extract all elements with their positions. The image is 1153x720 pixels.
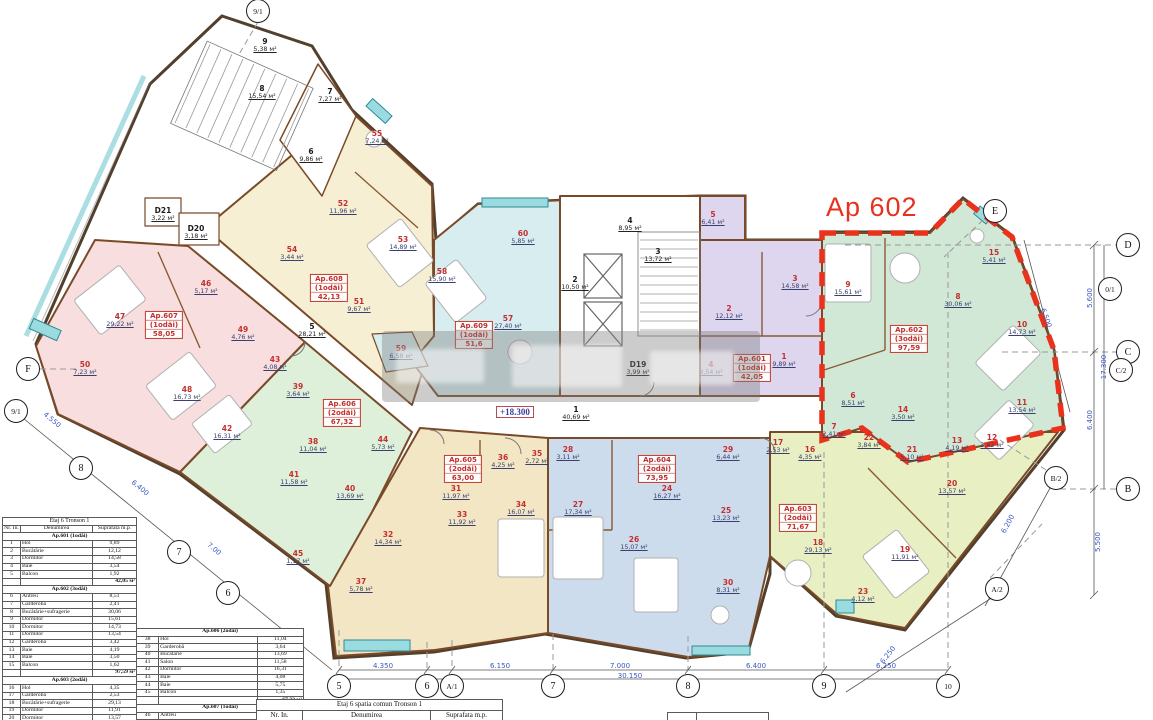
room-number: 21 — [900, 445, 923, 454]
axis-marker-C-2: C/2 — [1109, 358, 1133, 382]
room-number: 25 — [712, 506, 739, 515]
table-cell: Ap.602 (3odăi) — [3, 586, 137, 594]
room-number: 30 — [716, 578, 739, 587]
room-number: 16 — [798, 445, 821, 454]
room-number: 6 — [299, 147, 322, 156]
room-label-ap606-42: 4216,31 м² — [213, 424, 240, 440]
room-label-ap602-10: 1014,73 м² — [1008, 320, 1035, 336]
room-number: 8 — [248, 84, 275, 93]
room-number: 43 — [263, 355, 286, 364]
room-area: 15,90 м² — [428, 276, 455, 283]
axis-marker-9: 9 — [812, 674, 836, 698]
room-label-ap609-57: 5727,40 м² — [494, 314, 521, 330]
room-area: 4,19 м² — [945, 445, 968, 452]
room-number: 29 — [716, 445, 739, 454]
room-number: D20 — [184, 224, 207, 233]
apartment-name: Ap.603 — [780, 505, 816, 513]
room-label-ap606-40: 4013,69 м² — [336, 484, 363, 500]
table-cell: Ap.606 (2odăi) — [137, 629, 304, 637]
apartment-label-ap605: Ap.605(2odăi)63,00 — [444, 455, 482, 483]
room-area: 40,69 м² — [562, 414, 589, 421]
room-area: 17,34 м² — [564, 509, 591, 516]
apartment-type: (2odăi) — [445, 464, 481, 473]
dimension-label: 6.150 — [490, 662, 510, 670]
table-cell: Suprafata m.p. — [431, 710, 503, 720]
axis-marker-7: 7 — [167, 540, 191, 564]
room-label-ap606-45: 451,17 м² — [286, 549, 309, 565]
room-area: 4,25 м² — [491, 462, 514, 469]
room-label-ap604-28: 283,11 м² — [556, 445, 579, 461]
room-label-ap601-1: 19,89 м² — [772, 352, 795, 368]
schedule-table1: Etaj 6 Tronson 1Nr. In.DenumireaSuprafat… — [2, 517, 137, 720]
room-label-ap601-5: 56,41 м² — [701, 210, 724, 226]
table-cell: 40 — [137, 651, 159, 659]
axis-label: 9/1 — [11, 407, 21, 416]
room-area: 3,11 м² — [556, 454, 579, 461]
dimension-label: 7.000 — [610, 662, 630, 670]
room-number: 9 — [834, 280, 861, 289]
room-number: D21 — [151, 206, 174, 215]
room-area: 15,61 м² — [834, 289, 861, 296]
axis-label: 6 — [226, 588, 231, 599]
table-cell: 1,92 — [93, 571, 137, 579]
room-label-ap608-52: 5211,96 м² — [329, 199, 356, 215]
room-number: 1 — [772, 352, 795, 361]
room-label-ap608-55: 557,24 м² — [365, 129, 388, 145]
table-cell: Garderobă — [21, 692, 93, 700]
table-cell: Etaj 6 Tronson 1 — [3, 518, 137, 526]
table-cell: Dormitor — [159, 666, 258, 674]
table-cell: 43 — [137, 674, 159, 682]
room-area: 29,13 м² — [804, 547, 831, 554]
axis-label: 7 — [551, 681, 556, 692]
axis-label: B — [1125, 484, 1132, 495]
room-number: 22 — [857, 433, 880, 442]
room-label-ap601-3: 314,58 м² — [781, 274, 808, 290]
room-number: 15 — [982, 248, 1005, 257]
table-cell: 3,64 — [257, 644, 303, 652]
table-cell: Dormitor — [21, 631, 93, 639]
room-area: 15,07 м² — [620, 544, 647, 551]
room-label-ap603-22: 223,84 м² — [857, 433, 880, 449]
room-label-common-d20: D203,18 м² — [184, 224, 207, 240]
room-label-common-3: 313,72 м² — [644, 247, 671, 263]
table-cell: 20 — [3, 715, 21, 720]
room-number: 3 — [644, 247, 671, 256]
table-cell: 3,42 — [93, 639, 137, 647]
apartment-label-ap608: Ap.608(1odăi)42,13 — [310, 274, 348, 302]
room-label-ap604-25: 2513,23 м² — [712, 506, 739, 522]
room-label-ap607-49: 494,76 м² — [231, 325, 254, 341]
axis-marker-B: B — [1116, 477, 1140, 501]
room-label-ap604-27: 2717,34 м² — [564, 500, 591, 516]
room-area: 10,50 м² — [561, 284, 588, 291]
room-number: 2 — [715, 304, 742, 313]
room-label-ap605-31: 3111,97 м² — [442, 484, 469, 500]
level-mark: +18.300 — [496, 406, 534, 418]
table-cell — [3, 669, 21, 677]
apartment-type: (2odăi) — [780, 513, 816, 522]
table-cell: Salon — [159, 659, 258, 667]
room-number: 5 — [701, 210, 724, 219]
axis-marker-F: F — [16, 357, 40, 381]
room-number: 51 — [347, 297, 370, 306]
axis-label: 6 — [425, 681, 430, 692]
room-area: 3,44 м² — [280, 254, 303, 261]
room-area: 7,24 м² — [365, 138, 388, 145]
room-label-ap606-39: 393,64 м² — [286, 382, 309, 398]
room-label-ap604-26: 2615,07 м² — [620, 535, 647, 551]
dimension-label: 30.150 — [618, 672, 643, 680]
table-cell — [3, 578, 21, 586]
table-cell: 3 — [3, 555, 21, 563]
table-cell: 12,12 — [93, 548, 137, 556]
room-area: 13,54 м² — [1008, 407, 1035, 414]
table-cell: Dormitor — [21, 707, 93, 715]
room-label-ap605-32: 3214,34 м² — [374, 530, 401, 546]
axis-marker-B-2: B/2 — [1044, 466, 1068, 490]
table-cell: Denumirea — [21, 525, 93, 533]
table-cell: Baie — [159, 674, 258, 682]
axis-marker-8: 8 — [676, 674, 700, 698]
room-label-ap605-37: 375,78 м² — [349, 577, 372, 593]
room-area: 11,91 м² — [891, 554, 918, 561]
room-number: 8 — [944, 292, 971, 301]
table-cell: 4 — [3, 563, 21, 571]
room-label-ap607-50: 507,23 м² — [73, 360, 96, 376]
axis-marker-E: E — [983, 199, 1007, 223]
room-label-ap602-13: 134,19 м² — [945, 436, 968, 452]
room-area: 14,58 м² — [781, 283, 808, 290]
room-area: 5,17 м² — [194, 288, 217, 295]
room-area: 3,50 м² — [891, 414, 914, 421]
apartment-name: Ap.602 — [891, 326, 927, 334]
apartment-type: (1odăi) — [146, 320, 182, 329]
room-number: 45 — [286, 549, 309, 558]
room-area: 3,84 м² — [857, 442, 880, 449]
table-cell: Bucătărie — [21, 548, 93, 556]
table-cell: 44 — [137, 682, 159, 690]
room-number: 2 — [561, 275, 588, 284]
room-number: 41 — [280, 470, 307, 479]
apartment-total-area: 42,13 — [311, 292, 347, 301]
room-number: 10 — [1008, 320, 1035, 329]
table-cell: Nr. In. — [3, 525, 21, 533]
table-cell: 15 — [3, 662, 21, 670]
room-label-common-5: 528,21 м² — [298, 322, 325, 338]
table-cell: 17 — [3, 692, 21, 700]
axis-label: A/2 — [991, 585, 1002, 594]
table-cell: Antreu — [159, 712, 258, 720]
room-area: 14,89 м² — [389, 244, 416, 251]
room-area: 14,34 м² — [374, 539, 401, 546]
table-cell: 1 — [3, 540, 21, 548]
table-cell: 19 — [3, 707, 21, 715]
axis-label: 7 — [177, 547, 182, 558]
axis-marker-A-1: A/1 — [440, 674, 464, 698]
room-number: 11 — [1008, 398, 1035, 407]
room-area: 1,17 м² — [286, 558, 309, 565]
table-cell: 38 — [137, 636, 159, 644]
table-cell: 11,04 — [257, 636, 303, 644]
table-cell: 97,59 м² — [93, 669, 137, 677]
watermark — [382, 331, 760, 402]
axis-marker-9-1: 9/1 — [246, 0, 270, 23]
room-number: 9 — [253, 37, 276, 46]
table-fragment — [667, 712, 769, 720]
room-number: 48 — [173, 385, 200, 394]
room-number: 14 — [891, 405, 914, 414]
room-number: 26 — [620, 535, 647, 544]
axis-label: C/2 — [1116, 366, 1127, 375]
room-area: 29,22 м² — [106, 321, 133, 328]
room-area: 9,86 м² — [299, 156, 322, 163]
room-area: 13,69 м² — [336, 493, 363, 500]
room-label-ap607-46: 465,17 м² — [194, 279, 217, 295]
room-area: 2,53 м² — [766, 447, 789, 454]
room-number: 19 — [891, 545, 918, 554]
table-cell: 11,91 — [93, 707, 137, 715]
room-number: 47 — [106, 312, 133, 321]
room-number: 55 — [365, 129, 388, 138]
room-number: 50 — [73, 360, 96, 369]
table-cell: 11,58 — [257, 659, 303, 667]
room-label-ap605-34: 3416,07 м² — [507, 500, 534, 516]
room-area: 16,07 м² — [507, 509, 534, 516]
table-cell — [21, 669, 93, 677]
table-cell: Dormitor — [21, 555, 93, 563]
table-cell: Bucătărie — [159, 651, 258, 659]
ap602-callout: Ap 602 — [826, 192, 918, 223]
table-cell: 29,13 — [93, 700, 137, 708]
room-label-ap602-8: 830,06 м² — [944, 292, 971, 308]
table-cell: 10 — [3, 624, 21, 632]
floor-plan-page: 19,89 м²212,12 м²314,58 м²43,54 м²56,41 … — [0, 0, 1153, 720]
table-cell: 1,35 — [257, 689, 303, 697]
axis-label: 10 — [944, 682, 952, 691]
room-number: 57 — [494, 314, 521, 323]
room-area: 5,73 м² — [371, 444, 394, 451]
room-label-ap602-15: 155,41 м² — [982, 248, 1005, 264]
apartment-label-ap607: Ap.607(1odăi)58,05 — [145, 311, 183, 339]
axis-label: 8 — [686, 681, 691, 692]
apartment-label-ap602: Ap.602(3odăi)97,59 — [890, 325, 928, 353]
room-area: 6,41 м² — [701, 219, 724, 226]
room-area: 13,72 м² — [644, 256, 671, 263]
room-area: 7,23 м² — [73, 369, 96, 376]
table-cell: 14,58 — [93, 555, 137, 563]
table-cell: Ap.601 (1odăi) — [3, 533, 137, 541]
room-number: 37 — [349, 577, 372, 586]
room-label-ap602-11: 1113,54 м² — [1008, 398, 1035, 414]
axis-marker-D: D — [1116, 233, 1140, 257]
apartment-total-area: 97,59 — [891, 343, 927, 352]
room-number: 53 — [389, 235, 416, 244]
axis-marker-7: 7 — [541, 674, 565, 698]
axis-marker-9-1: 9/1 — [4, 399, 28, 423]
room-area: 4,35 м² — [798, 454, 821, 461]
room-number: 32 — [374, 530, 401, 539]
apartment-name: Ap.609 — [456, 322, 492, 330]
room-number: 44 — [371, 435, 394, 444]
room-label-ap607-47: 4729,22 м² — [106, 312, 133, 328]
room-area: 3,64 м² — [286, 391, 309, 398]
room-label-ap606-43: 434,08 м² — [263, 355, 286, 371]
axis-marker-6: 6 — [216, 581, 240, 605]
table-cell: 18 — [3, 700, 21, 708]
room-area: 13,23 м² — [712, 515, 739, 522]
dimension-label: 4.350 — [373, 662, 393, 670]
apartment-name: Ap.607 — [146, 312, 182, 320]
table-cell: 42,05 м² — [93, 578, 137, 586]
room-label-ap602-9: 915,61 м² — [834, 280, 861, 296]
dimension-label: 5.600 — [1086, 288, 1094, 308]
table-cell: Suprafata m.p. — [93, 525, 137, 533]
table-cell: 11 — [3, 631, 21, 639]
room-label-ap605-36: 364,25 м² — [491, 453, 514, 469]
room-label-ap602-14: 143,50 м² — [891, 405, 914, 421]
room-area: 28,21 м² — [298, 331, 325, 338]
room-area: 2,41 м² — [822, 431, 845, 438]
room-area: 11,92 м² — [448, 519, 475, 526]
room-label-ap603-19: 1911,91 м² — [891, 545, 918, 561]
room-label-common-1: 140,69 м² — [562, 405, 589, 421]
room-area: 5,85 м² — [511, 238, 534, 245]
table-cell: 2,41 — [93, 601, 137, 609]
axis-label: 5 — [337, 681, 342, 692]
room-number: 49 — [231, 325, 254, 334]
table-cell: Garderobă — [21, 601, 93, 609]
table-cell: Hol — [21, 685, 93, 693]
table-cell: Bucătărie+sufragerie — [21, 609, 93, 617]
table-cell: 8 — [3, 609, 21, 617]
room-label-ap603-20: 2013,57 м² — [938, 479, 965, 495]
room-label-ap604-30: 308,31 м² — [716, 578, 739, 594]
axis-label: A/1 — [446, 682, 457, 691]
room-number: 3 — [781, 274, 808, 283]
room-number: 23 — [851, 587, 874, 596]
table-cell: 9 — [3, 616, 21, 624]
room-area: 15,54 м² — [248, 93, 275, 100]
room-label-common-8: 815,54 м² — [248, 84, 275, 100]
room-label-ap601-2: 212,12 м² — [715, 304, 742, 320]
table-cell — [159, 697, 258, 705]
table-cell: 7 — [3, 601, 21, 609]
table-cell: Antreu — [21, 593, 93, 601]
table-cell: 16,31 — [257, 666, 303, 674]
table-cell: Baie — [21, 563, 93, 571]
table-cell: Balcon — [21, 662, 93, 670]
room-area: 12,12 м² — [715, 313, 742, 320]
room-label-ap609-58: 5815,90 м² — [428, 267, 455, 283]
room-label-ap602-12: 123,42 м² — [980, 433, 1003, 449]
apartment-label-ap603: Ap.603(2odăi)71,67 — [779, 504, 817, 532]
table-cell: 14 — [3, 654, 21, 662]
room-area: 3,42 м² — [980, 442, 1003, 449]
room-label-common-2: 210,50 м² — [561, 275, 588, 291]
room-number: 1 — [562, 405, 589, 414]
room-area: 3,22 м² — [151, 215, 174, 222]
table-cell: Balcon — [21, 571, 93, 579]
table-cell: Garderobă — [21, 639, 93, 647]
room-label-ap603-17: 172,53 м² — [766, 438, 789, 454]
room-label-ap605-33: 3311,92 м² — [448, 510, 475, 526]
table-cell: 45 — [137, 689, 159, 697]
dimension-label: 5.500 — [1094, 532, 1102, 552]
room-number: 12 — [980, 433, 1003, 442]
table-cell: Balcon — [159, 689, 258, 697]
apartment-name: Ap.606 — [324, 400, 360, 408]
table-cell: 3,54 — [93, 563, 137, 571]
table-cell: 39 — [137, 644, 159, 652]
room-label-common-4: 48,95 м² — [618, 216, 641, 232]
room-area: 9,89 м² — [772, 361, 795, 368]
room-area: 11,04 м² — [299, 446, 326, 453]
room-number: 58 — [428, 267, 455, 276]
room-label-ap606-41: 4111,58 м² — [280, 470, 307, 486]
room-number: 54 — [280, 245, 303, 254]
table-cell: 41 — [137, 659, 159, 667]
table-cell: 42 — [137, 666, 159, 674]
room-label-ap606-44: 445,73 м² — [371, 435, 394, 451]
room-number: 31 — [442, 484, 469, 493]
axis-marker-10: 10 — [936, 674, 960, 698]
apartment-type: (2odăi) — [324, 408, 360, 417]
room-area: 2,72 м² — [525, 458, 548, 465]
room-number: 24 — [653, 484, 680, 493]
table-cell: Baie — [21, 647, 93, 655]
room-label-ap604-24: 2416,27 м² — [653, 484, 680, 500]
room-number: 5 — [298, 322, 325, 331]
apartment-total-area: 63,00 — [445, 473, 481, 482]
axis-label: B/2 — [1051, 474, 1062, 483]
table-cell — [137, 697, 159, 705]
table-cell: 1,62 — [93, 662, 137, 670]
apartment-label-ap606: Ap.606(2odăi)67,32 — [323, 399, 361, 427]
room-number: 34 — [507, 500, 534, 509]
table-cell — [21, 578, 93, 586]
table-cell: Ap.603 (2odăi) — [3, 677, 137, 685]
table-cell: Baie — [159, 682, 258, 690]
schedule-table3: Etaj 6 spatia comun Tronson 1Nr. In.Denu… — [256, 699, 503, 720]
table-cell: Nr. In. — [257, 710, 303, 720]
dimension-label: 17.300 — [1100, 355, 1108, 380]
room-label-ap603-21: 215,10 м² — [900, 445, 923, 461]
room-number: 7 — [822, 422, 845, 431]
room-label-ap608-54: 543,44 м² — [280, 245, 303, 261]
axis-label: C — [1125, 347, 1132, 358]
room-area: 4,76 м² — [231, 334, 254, 341]
room-label-common-7: 77,27 м² — [318, 87, 341, 103]
room-area: 7,27 м² — [318, 96, 341, 103]
table-cell: Etaj 6 spatia comun Tronson 1 — [257, 700, 503, 711]
axis-marker-6: 6 — [415, 674, 439, 698]
room-number: 27 — [564, 500, 591, 509]
axis-marker-5: 5 — [327, 674, 351, 698]
table-cell: 30,06 — [93, 609, 137, 617]
table-cell: 13,54 — [93, 631, 137, 639]
axis-marker-A-2: A/2 — [985, 577, 1009, 601]
table-cell: 9,89 — [93, 540, 137, 548]
axis-label: 0/1 — [1105, 285, 1115, 294]
table-cell: 16 — [3, 685, 21, 693]
room-label-ap603-16: 164,35 м² — [798, 445, 821, 461]
room-number: 40 — [336, 484, 363, 493]
axis-label: D — [1124, 240, 1131, 251]
room-number: 46 — [194, 279, 217, 288]
room-number: 38 — [299, 437, 326, 446]
room-number: 42 — [213, 424, 240, 433]
